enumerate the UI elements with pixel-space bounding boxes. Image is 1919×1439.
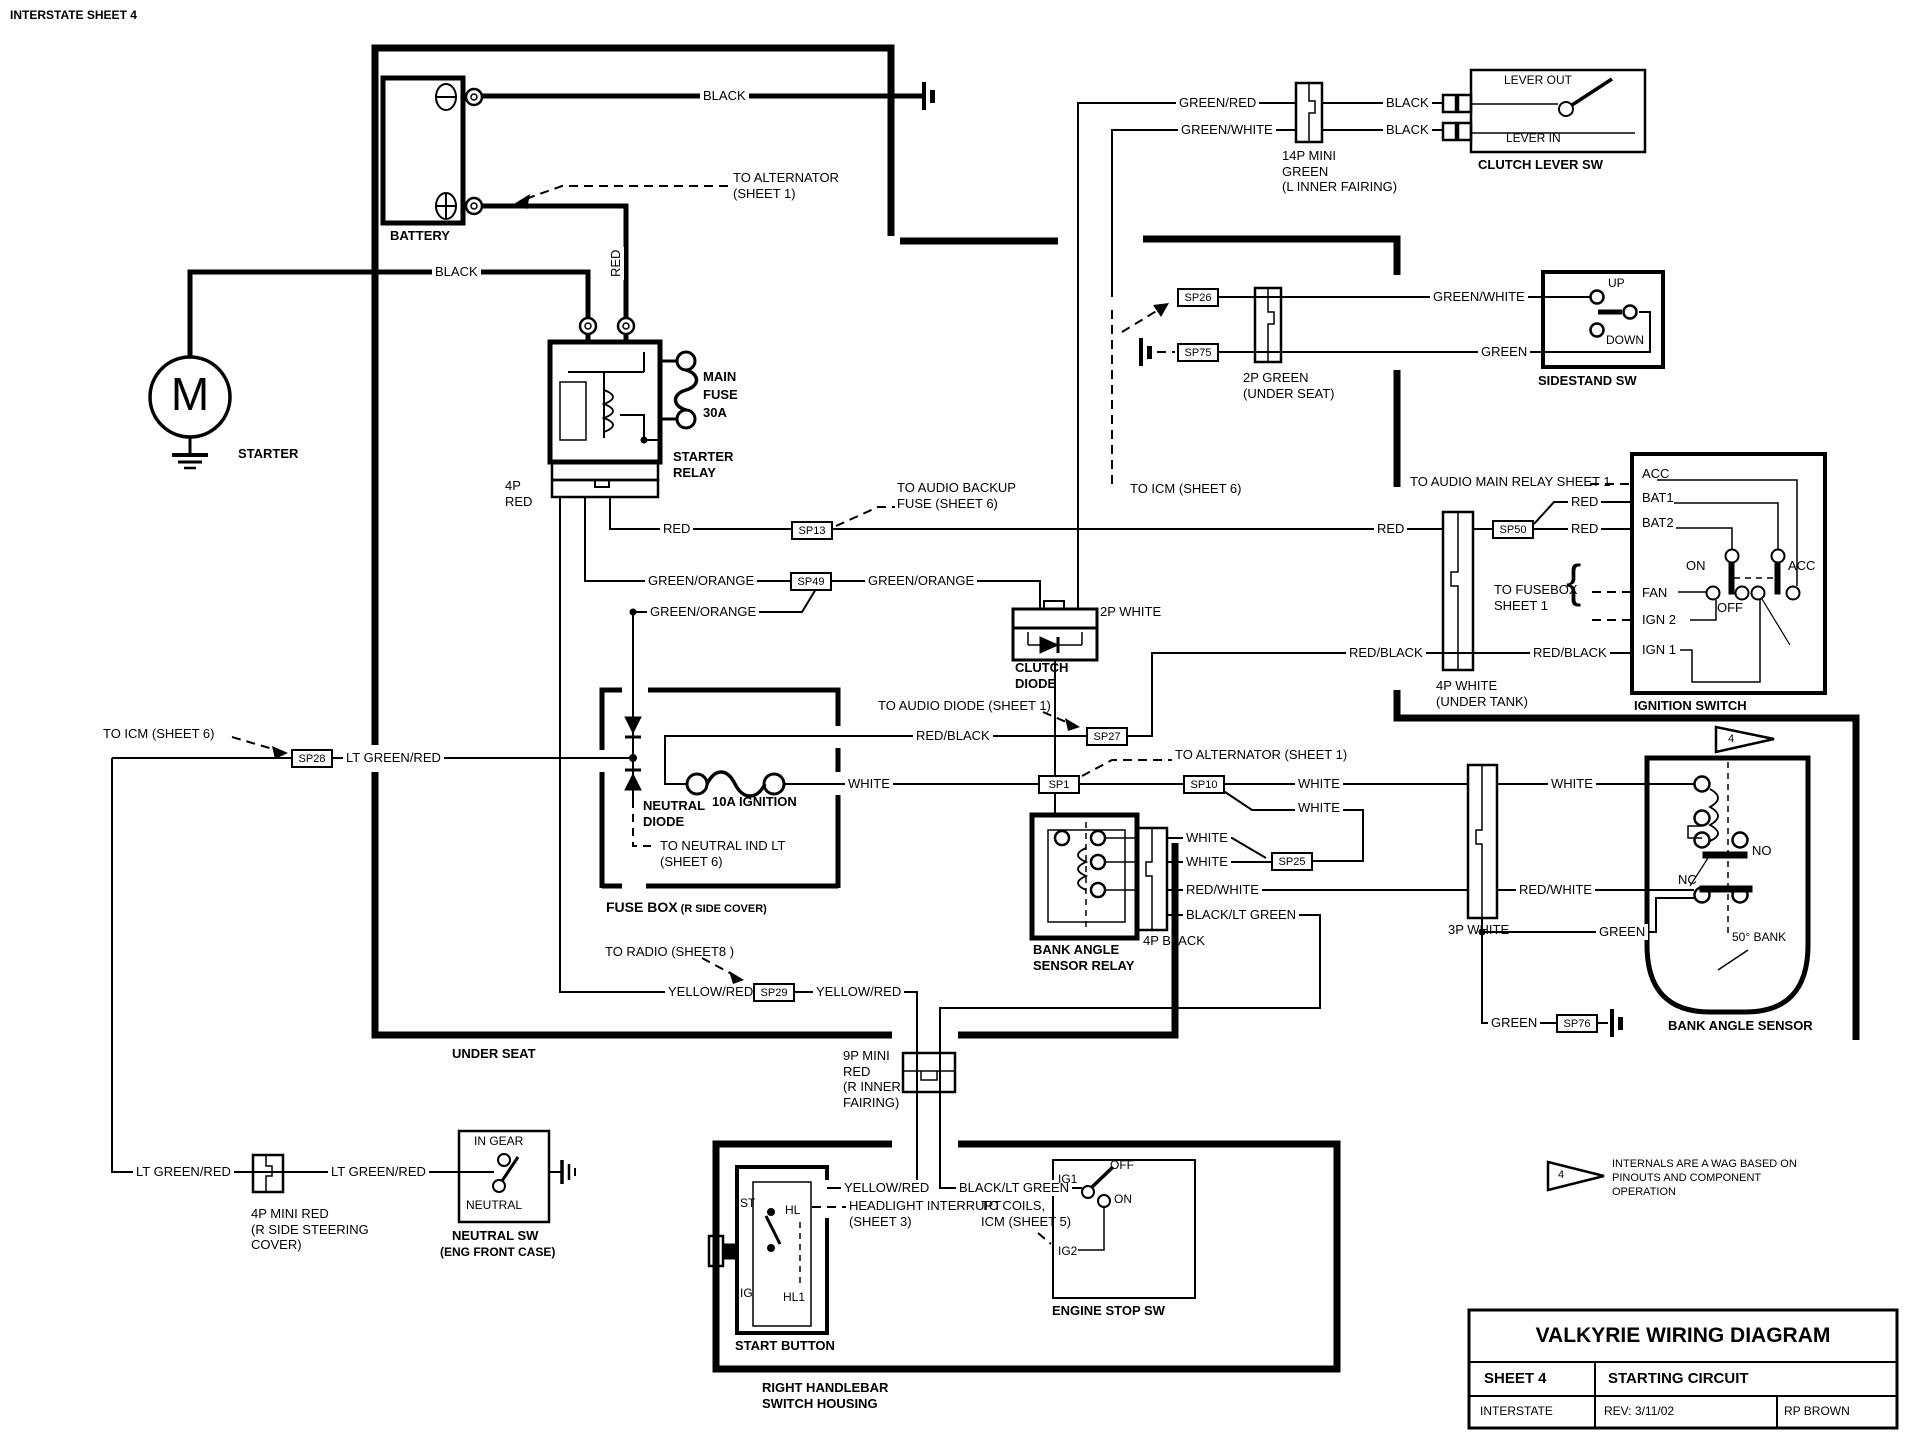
- connector-4p-red-label: 4P RED: [505, 478, 532, 509]
- wire-label-green-orange-r: GREEN/ORANGE: [865, 573, 977, 589]
- start-button-label: START BUTTON: [735, 1338, 835, 1354]
- wire-green-orange-2: [633, 589, 816, 800]
- note-to-alternator: TO ALTERNATOR (SHEET 1): [733, 170, 839, 201]
- relay-wire-red-white: RED/WHITE: [1183, 882, 1262, 898]
- connector-2p-white-label: 2P WHITE: [1100, 604, 1161, 620]
- note-radio: TO RADIO (SHEET8 ): [605, 944, 734, 960]
- sensor-nc-label: NC: [1678, 872, 1697, 888]
- clutch-diode-symbol: [1013, 601, 1097, 660]
- ign-red-r1: RED: [1568, 494, 1601, 510]
- es-off: OFF: [1110, 1158, 1134, 1172]
- title-block-sheet: SHEET 4: [1484, 1370, 1547, 1387]
- note-triangle: [1548, 1162, 1604, 1190]
- wire-green-ss: GREEN: [1478, 344, 1530, 360]
- wire-lt-green-red-bl2: LT GREEN/RED: [328, 1164, 429, 1180]
- wire-label-white-top: WHITE: [1295, 776, 1343, 792]
- start-button-symbol: [709, 1167, 827, 1333]
- note-wag: INTERNALS ARE A WAG BASED ON PINOUTS AND…: [1612, 1157, 1797, 1199]
- clutch-lever-terminals: [1443, 95, 1471, 140]
- lever-out-label: LEVER OUT: [1504, 73, 1572, 87]
- splice-sp29: SP29: [753, 983, 795, 1002]
- fuse-box-internals: [625, 717, 784, 796]
- wiring-diagram-sheet: INTERSTATE SHEET 4 BATTERY BLACK TO ALTE…: [0, 0, 1919, 1439]
- neutral-diode-label: NEUTRAL DIODE: [643, 798, 705, 829]
- connector-4p-black: [1137, 828, 1167, 930]
- clutch-diode-label: CLUTCH DIODE: [1015, 660, 1068, 691]
- splice-sp28: SP28: [291, 749, 333, 768]
- note-audio-backup: TO AUDIO BACKUP FUSE (SHEET 6): [897, 480, 1016, 511]
- fuse-box-label: FUSE BOX (R SIDE COVER): [606, 900, 767, 916]
- starter-motor-letter: M: [150, 370, 230, 418]
- note-alternator-mid: TO ALTERNATOR (SHEET 1): [1175, 747, 1347, 763]
- neutral-neutral: NEUTRAL: [466, 1198, 522, 1212]
- battery-symbol: [383, 78, 482, 223]
- sidestand-label: SIDESTAND SW: [1538, 373, 1637, 389]
- connectors: [253, 83, 1497, 1192]
- wire-label-white-bot: WHITE: [1295, 800, 1343, 816]
- bas-relay-label: BANK ANGLE SENSOR RELAY: [1033, 942, 1134, 973]
- connector-9p-label: 9P MINI RED (R INNER FAIRING): [843, 1048, 901, 1110]
- triangle-4-note: 4: [1558, 1169, 1564, 1182]
- sensor-bank-label: 50° BANK: [1732, 930, 1786, 944]
- neutral-in-gear: IN GEAR: [474, 1134, 523, 1148]
- connector-14p-mini-green: [1296, 83, 1322, 142]
- neutral-sw-label: NEUTRAL SW: [452, 1228, 538, 1244]
- connector-2p-green-label: 2P GREEN (UNDER SEAT): [1243, 370, 1334, 401]
- es-ig2: IG2: [1058, 1244, 1077, 1258]
- sensor-no-label: NO: [1752, 843, 1772, 859]
- wire-black-lever1: BLACK: [1383, 95, 1432, 111]
- note-headlight: HEADLIGHT INTERRUPT (SHEET 3): [849, 1198, 1001, 1229]
- ign-on: ON: [1686, 558, 1706, 574]
- ign-off: OFF: [1717, 600, 1743, 616]
- wires: [112, 103, 1694, 1188]
- ground-icon-sp75: [1139, 338, 1152, 366]
- title-block-title: VALKYRIE WIRING DIAGRAM: [1469, 1324, 1897, 1348]
- splice-sp49: SP49: [790, 572, 832, 591]
- ign-bat1: BAT1: [1642, 490, 1674, 506]
- splice-sp76: SP76: [1556, 1014, 1598, 1033]
- connector-3p-white-label: 3P WHITE: [1448, 922, 1509, 938]
- bank-angle-sensor-label: BANK ANGLE SENSOR: [1668, 1018, 1813, 1034]
- title-block-circuit: STARTING CIRCUIT: [1608, 1370, 1749, 1387]
- note-audio-main-relay: TO AUDIO MAIN RELAY SHEET 1: [1410, 474, 1611, 490]
- neutral-sw-label2: (ENG FRONT CASE): [440, 1245, 555, 1259]
- connector-4p-black-label: 4P BLACK: [1143, 933, 1205, 949]
- wire-green-orange-1: [585, 497, 1040, 608]
- ign-red-black-r: RED/BLACK: [1530, 645, 1610, 661]
- ignition-fuse-label: 10A IGNITION: [712, 794, 797, 810]
- wire-label-green-orange-2: GREEN/ORANGE: [647, 604, 759, 620]
- start-hl: HL: [785, 1203, 800, 1217]
- sensor-wire-white: WHITE: [1548, 776, 1596, 792]
- connector-4p-mini-red: [253, 1155, 283, 1192]
- connector-4p-mini-label: 4P MINI RED (R SIDE STEERING COVER): [251, 1206, 369, 1253]
- wire-label-black-top: BLACK: [700, 88, 749, 104]
- starter-relay-label: STARTER RELAY: [673, 449, 733, 480]
- title-block-rev: REV: 3/11/02: [1604, 1404, 1674, 1418]
- splice-sp50: SP50: [1492, 520, 1534, 539]
- es-on: ON: [1114, 1192, 1132, 1206]
- relay-wire-white2: WHITE: [1183, 854, 1231, 870]
- splice-sp26: SP26: [1177, 288, 1219, 307]
- sp76-wire-green: GREEN: [1488, 1015, 1540, 1031]
- connector-3p-white: [1468, 765, 1497, 918]
- handlebar-housing-outline: [716, 1144, 1337, 1369]
- bank-angle-sensor-relay: [1032, 815, 1137, 938]
- ign-red-black-l: RED/BLACK: [1346, 645, 1426, 661]
- start-st: ST: [740, 1196, 755, 1210]
- start-ig: IG: [740, 1286, 753, 1300]
- title-block-model: INTERSTATE: [1480, 1404, 1553, 1418]
- note-icm-left: TO ICM (SHEET 6): [103, 726, 214, 742]
- ign-acc2: ACC: [1788, 558, 1815, 574]
- wire-label-red-vert: RED: [608, 247, 624, 280]
- splice-sp75: SP75: [1177, 343, 1219, 362]
- hb-wire-yellow-red: YELLOW/RED: [841, 1180, 932, 1196]
- note-coils: TO COILS, ICM (SHEET 5): [981, 1198, 1071, 1229]
- lever-in-label: LEVER IN: [1506, 131, 1561, 145]
- note-icm-right: TO ICM (SHEET 6): [1130, 481, 1241, 497]
- engine-stop-label: ENGINE STOP SW: [1052, 1303, 1165, 1319]
- wire-label-white-fuse: WHITE: [845, 776, 893, 792]
- connector-4p-white-label: 4P WHITE (UNDER TANK): [1436, 678, 1528, 709]
- splice-sp25: SP25: [1271, 852, 1313, 871]
- sensor-wire-red-white: RED/WHITE: [1516, 882, 1595, 898]
- note-neutral-ind: TO NEUTRAL IND LT (SHEET 6): [660, 838, 785, 869]
- wire-label-red-black-1: RED/BLACK: [913, 728, 993, 744]
- ign-acc: ACC: [1642, 466, 1669, 482]
- battery-label: BATTERY: [390, 228, 450, 244]
- ignition-switch-label: IGNITION SWITCH: [1634, 698, 1747, 714]
- sheet-header: INTERSTATE SHEET 4: [10, 8, 137, 22]
- wire-black-lever2: BLACK: [1383, 122, 1432, 138]
- splice-sp10: SP10: [1183, 775, 1225, 794]
- relay-lugs: [580, 318, 634, 334]
- fusebox-brace: {: [1566, 574, 1581, 590]
- wire-green-white-label: GREEN/WHITE: [1178, 122, 1276, 138]
- wire-label-yellow-red-l: YELLOW/RED: [665, 984, 756, 1000]
- wire-green-sp76: [1482, 932, 1608, 1023]
- bank-angle-sensor: [1647, 727, 1808, 1012]
- ign-bat2: BAT2: [1642, 515, 1674, 531]
- ign-fan: FAN: [1642, 585, 1667, 601]
- sensor-wire-green: GREEN: [1596, 924, 1648, 940]
- hb-wire-black-lt-green: BLACK/LT GREEN: [956, 1180, 1072, 1196]
- ign-red-r2: RED: [1568, 521, 1601, 537]
- sidestand-up: UP: [1608, 276, 1625, 290]
- title-block-author: RP BROWN: [1784, 1404, 1850, 1418]
- wire-lt-green-red-bl1: LT GREEN/RED: [133, 1164, 234, 1180]
- ground-icon-top: [922, 82, 935, 110]
- wire-label-yellow-red-r: YELLOW/RED: [813, 984, 904, 1000]
- splice-sp27: SP27: [1086, 727, 1128, 746]
- wire-label-lt-green-red: LT GREEN/RED: [343, 750, 444, 766]
- ign-ign2: IGN 2: [1642, 612, 1676, 628]
- relay-wire-white1: WHITE: [1183, 830, 1231, 846]
- connector-4p-white: [1443, 512, 1473, 670]
- wire-label-red: RED: [660, 521, 693, 537]
- note-audio-diode: TO AUDIO DIODE (SHEET 1): [878, 698, 1051, 714]
- under-seat-label: UNDER SEAT: [452, 1046, 536, 1062]
- clutch-lever-label: CLUTCH LEVER SW: [1478, 157, 1603, 173]
- wire-green-sensor: [1482, 898, 1694, 932]
- sidestand-down: DOWN: [1606, 333, 1644, 347]
- connector-2p-green: [1255, 288, 1281, 362]
- wire-green-white-ss: GREEN/WHITE: [1430, 289, 1528, 305]
- ign-ign1: IGN 1: [1642, 642, 1676, 658]
- main-fuse-label: MAIN FUSE 30A: [703, 368, 738, 422]
- connector-9p-mini-red: [903, 1053, 955, 1092]
- es-ig1: IG1: [1058, 1172, 1077, 1186]
- relay-wire-black-lt-green: BLACK/LT GREEN: [1183, 907, 1299, 923]
- splice-sp1: SP1: [1038, 775, 1080, 794]
- wire-label-black-starter: BLACK: [432, 264, 481, 280]
- starter-label: STARTER: [238, 446, 298, 462]
- wire-red: [610, 497, 1632, 529]
- wire-label-green-orange-1: GREEN/ORANGE: [645, 573, 757, 589]
- connector-14p-label: 14P MINI GREEN (L INNER FAIRING): [1282, 148, 1397, 195]
- wire-green-red-label: GREEN/RED: [1176, 95, 1259, 111]
- triangle-4-top: 4: [1728, 733, 1734, 746]
- splice-sp13: SP13: [791, 521, 833, 540]
- ground-icon-sp76: [1610, 1009, 1623, 1037]
- ign-red-l: RED: [1374, 521, 1407, 537]
- wire-green-white: [1112, 130, 1296, 297]
- start-hl1: HL1: [783, 1290, 805, 1304]
- battery-cables: [190, 96, 922, 357]
- handlebar-housing-label: RIGHT HANDLEBAR SWITCH HOUSING: [762, 1380, 888, 1411]
